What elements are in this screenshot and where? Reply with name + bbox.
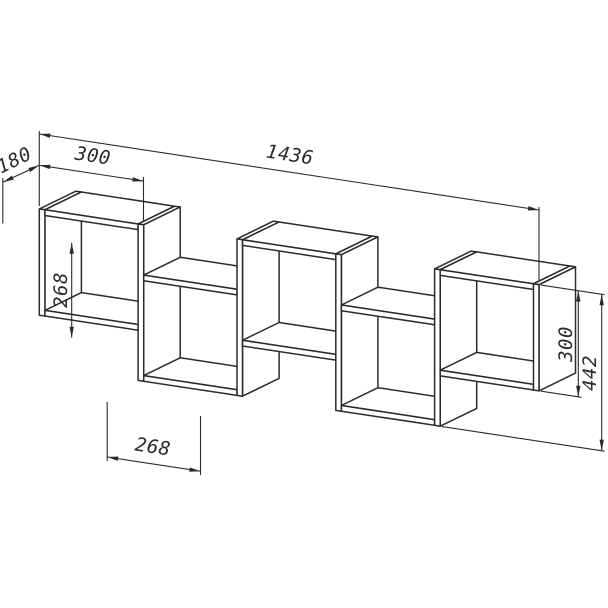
dimension-arrow [39, 165, 50, 169]
dimension-line [442, 427, 605, 452]
dimension-arrow [39, 133, 50, 137]
dimension-arrow [70, 327, 74, 338]
dimension-label-depth: 180 [0, 143, 35, 178]
shelf-technical-drawing: 1436 300 180 268 268 300 442 [0, 0, 608, 608]
panel-face [138, 224, 144, 381]
dimension-line [541, 391, 582, 397]
dimension-arrow [189, 467, 200, 471]
dimension-arrow [576, 291, 580, 302]
panel-face [39, 209, 45, 316]
shelf-outline [39, 191, 575, 426]
dimension-label-total-height: 442 [579, 355, 601, 391]
dimension-label-right-box-height: 300 [555, 326, 577, 363]
dimension-arrow [600, 294, 604, 305]
panel-face [237, 239, 243, 396]
panel-face [336, 254, 342, 411]
panel-face [435, 269, 441, 426]
dimension-arrow [132, 177, 143, 181]
dimension-label-inner-height: 268 [50, 272, 72, 308]
panel-face [144, 207, 181, 381]
panel-face [341, 237, 378, 411]
dimension-line [39, 165, 143, 181]
dimension-line [107, 457, 200, 471]
dimension-arrow [528, 206, 539, 210]
dimension-arrow [600, 440, 604, 451]
drawing-canvas: 1436 300 180 268 268 300 442 [0, 0, 608, 608]
dimension-label-total-width: 1436 [265, 141, 316, 170]
dimension-label-box-width: 300 [73, 142, 113, 169]
dimension-arrow [28, 165, 39, 172]
dimension-arrow [107, 456, 118, 460]
dimension-label-bottom-inner-width: 268 [134, 434, 173, 461]
panel-face [534, 284, 540, 391]
